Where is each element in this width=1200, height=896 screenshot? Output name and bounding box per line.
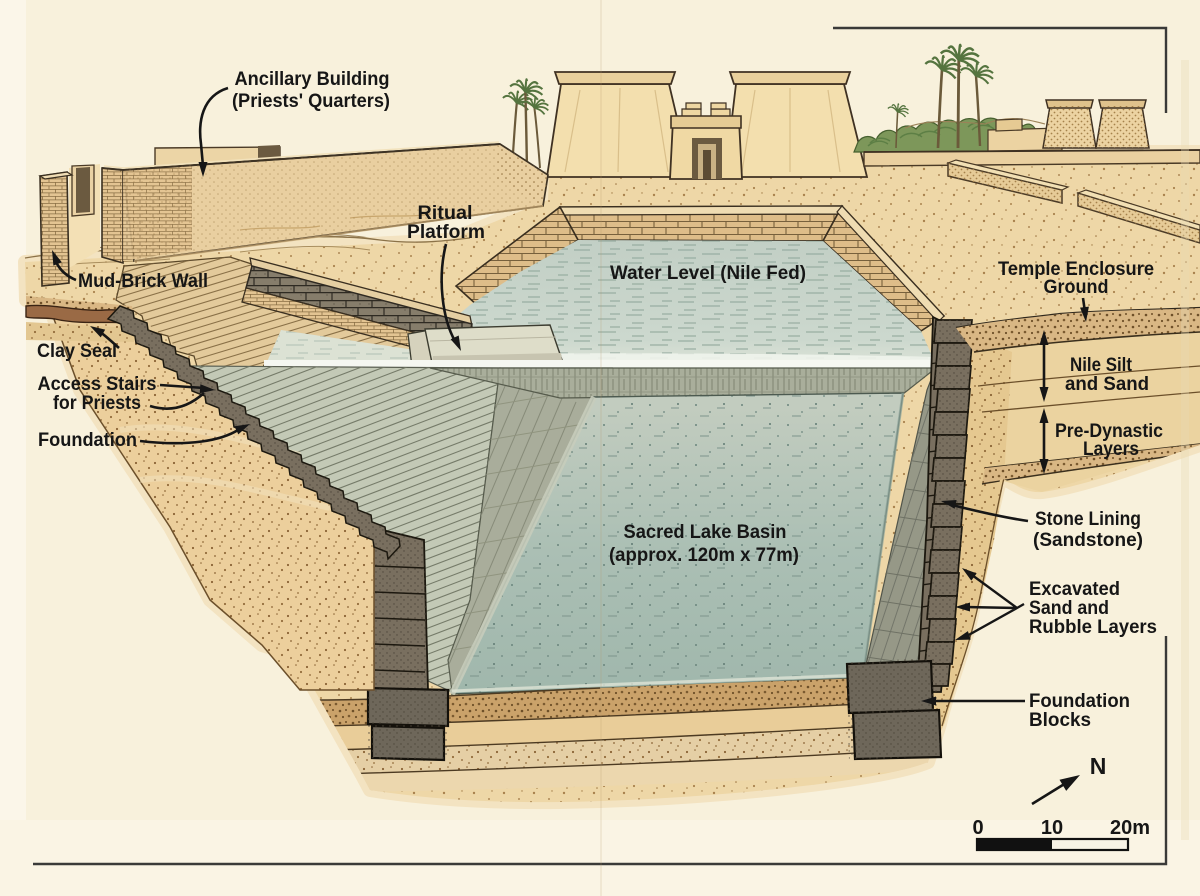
svg-text:Ground: Ground	[1044, 277, 1109, 298]
svg-text:Stone Lining: Stone Lining	[1035, 509, 1141, 530]
svg-text:Ancillary Building: Ancillary Building	[235, 69, 390, 90]
svg-text:Excavated: Excavated	[1029, 579, 1120, 600]
svg-text:10: 10	[1041, 817, 1063, 839]
svg-text:0: 0	[972, 817, 983, 839]
svg-text:for Priests: for Priests	[53, 393, 141, 414]
svg-text:Platform: Platform	[407, 222, 485, 243]
svg-text:Ritual: Ritual	[418, 203, 473, 224]
svg-text:Sand and: Sand and	[1029, 598, 1109, 619]
svg-text:(Priests' Quarters): (Priests' Quarters)	[232, 91, 390, 112]
svg-text:and Sand: and Sand	[1065, 374, 1149, 395]
svg-text:20m: 20m	[1110, 817, 1150, 839]
svg-text:(approx. 120m x 77m): (approx. 120m x 77m)	[609, 545, 799, 566]
svg-text:(Sandstone): (Sandstone)	[1033, 530, 1143, 551]
svg-text:Blocks: Blocks	[1029, 710, 1091, 731]
svg-text:Mud-Brick Wall: Mud-Brick Wall	[78, 271, 208, 292]
svg-text:Rubble Layers: Rubble Layers	[1029, 617, 1157, 638]
svg-text:Nile Silt: Nile Silt	[1070, 355, 1133, 376]
svg-text:Layers: Layers	[1083, 439, 1139, 460]
svg-text:Clay Seal: Clay Seal	[37, 341, 117, 362]
svg-text:Access Stairs: Access Stairs	[38, 374, 157, 395]
svg-text:Foundation: Foundation	[38, 430, 137, 451]
svg-text:Foundation: Foundation	[1029, 691, 1130, 712]
svg-text:Water Level (Nile Fed): Water Level (Nile Fed)	[610, 263, 806, 284]
svg-text:Sacred Lake Basin: Sacred Lake Basin	[624, 522, 787, 543]
svg-text:N: N	[1090, 753, 1107, 779]
